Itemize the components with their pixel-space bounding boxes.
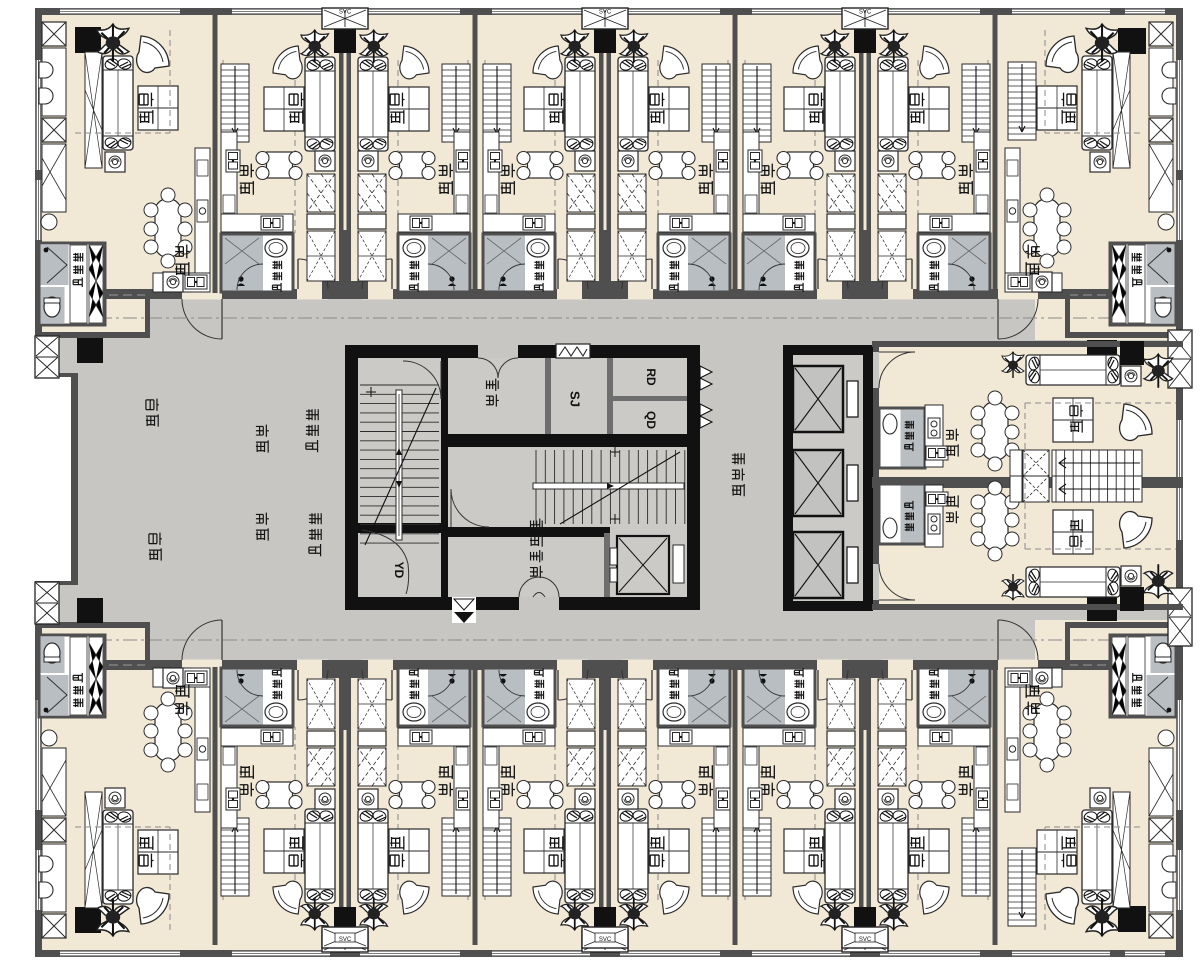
svg-text:SVC: SVC	[599, 937, 612, 943]
svg-text:SVC: SVC	[859, 10, 872, 16]
svg-text:QD: QD	[644, 411, 658, 429]
svg-text:SJ: SJ	[568, 391, 583, 407]
svg-text:SVC: SVC	[339, 10, 352, 16]
svg-text:SVC: SVC	[859, 937, 872, 943]
svg-text:RD: RD	[644, 368, 658, 386]
svg-text:SVC: SVC	[599, 10, 612, 16]
svg-text:SVC: SVC	[339, 937, 352, 943]
svg-text:YD: YD	[392, 562, 406, 579]
